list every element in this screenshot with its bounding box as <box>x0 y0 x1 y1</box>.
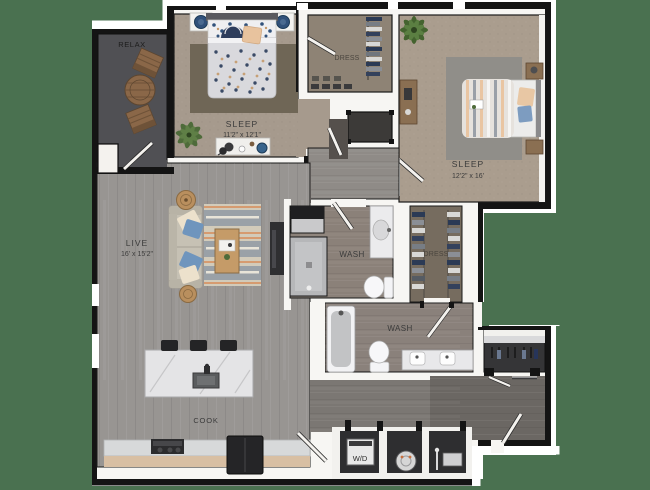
svg-text:COOK: COOK <box>193 416 218 425</box>
svg-text:11'2" x 12'1": 11'2" x 12'1" <box>223 132 261 139</box>
svg-text:WASH: WASH <box>339 250 364 259</box>
svg-text:12'2" x 16': 12'2" x 16' <box>452 173 484 180</box>
svg-text:DRESS: DRESS <box>423 251 448 258</box>
svg-text:LIVE: LIVE <box>126 238 148 248</box>
svg-text:DRESS: DRESS <box>334 55 359 62</box>
svg-text:W/D: W/D <box>353 454 368 463</box>
svg-text:WASH: WASH <box>387 324 412 333</box>
svg-text:SLEEP: SLEEP <box>226 119 258 129</box>
svg-text:16' x 15'2": 16' x 15'2" <box>121 251 154 258</box>
svg-text:RELAX: RELAX <box>118 40 146 49</box>
svg-text:SLEEP: SLEEP <box>452 159 484 169</box>
